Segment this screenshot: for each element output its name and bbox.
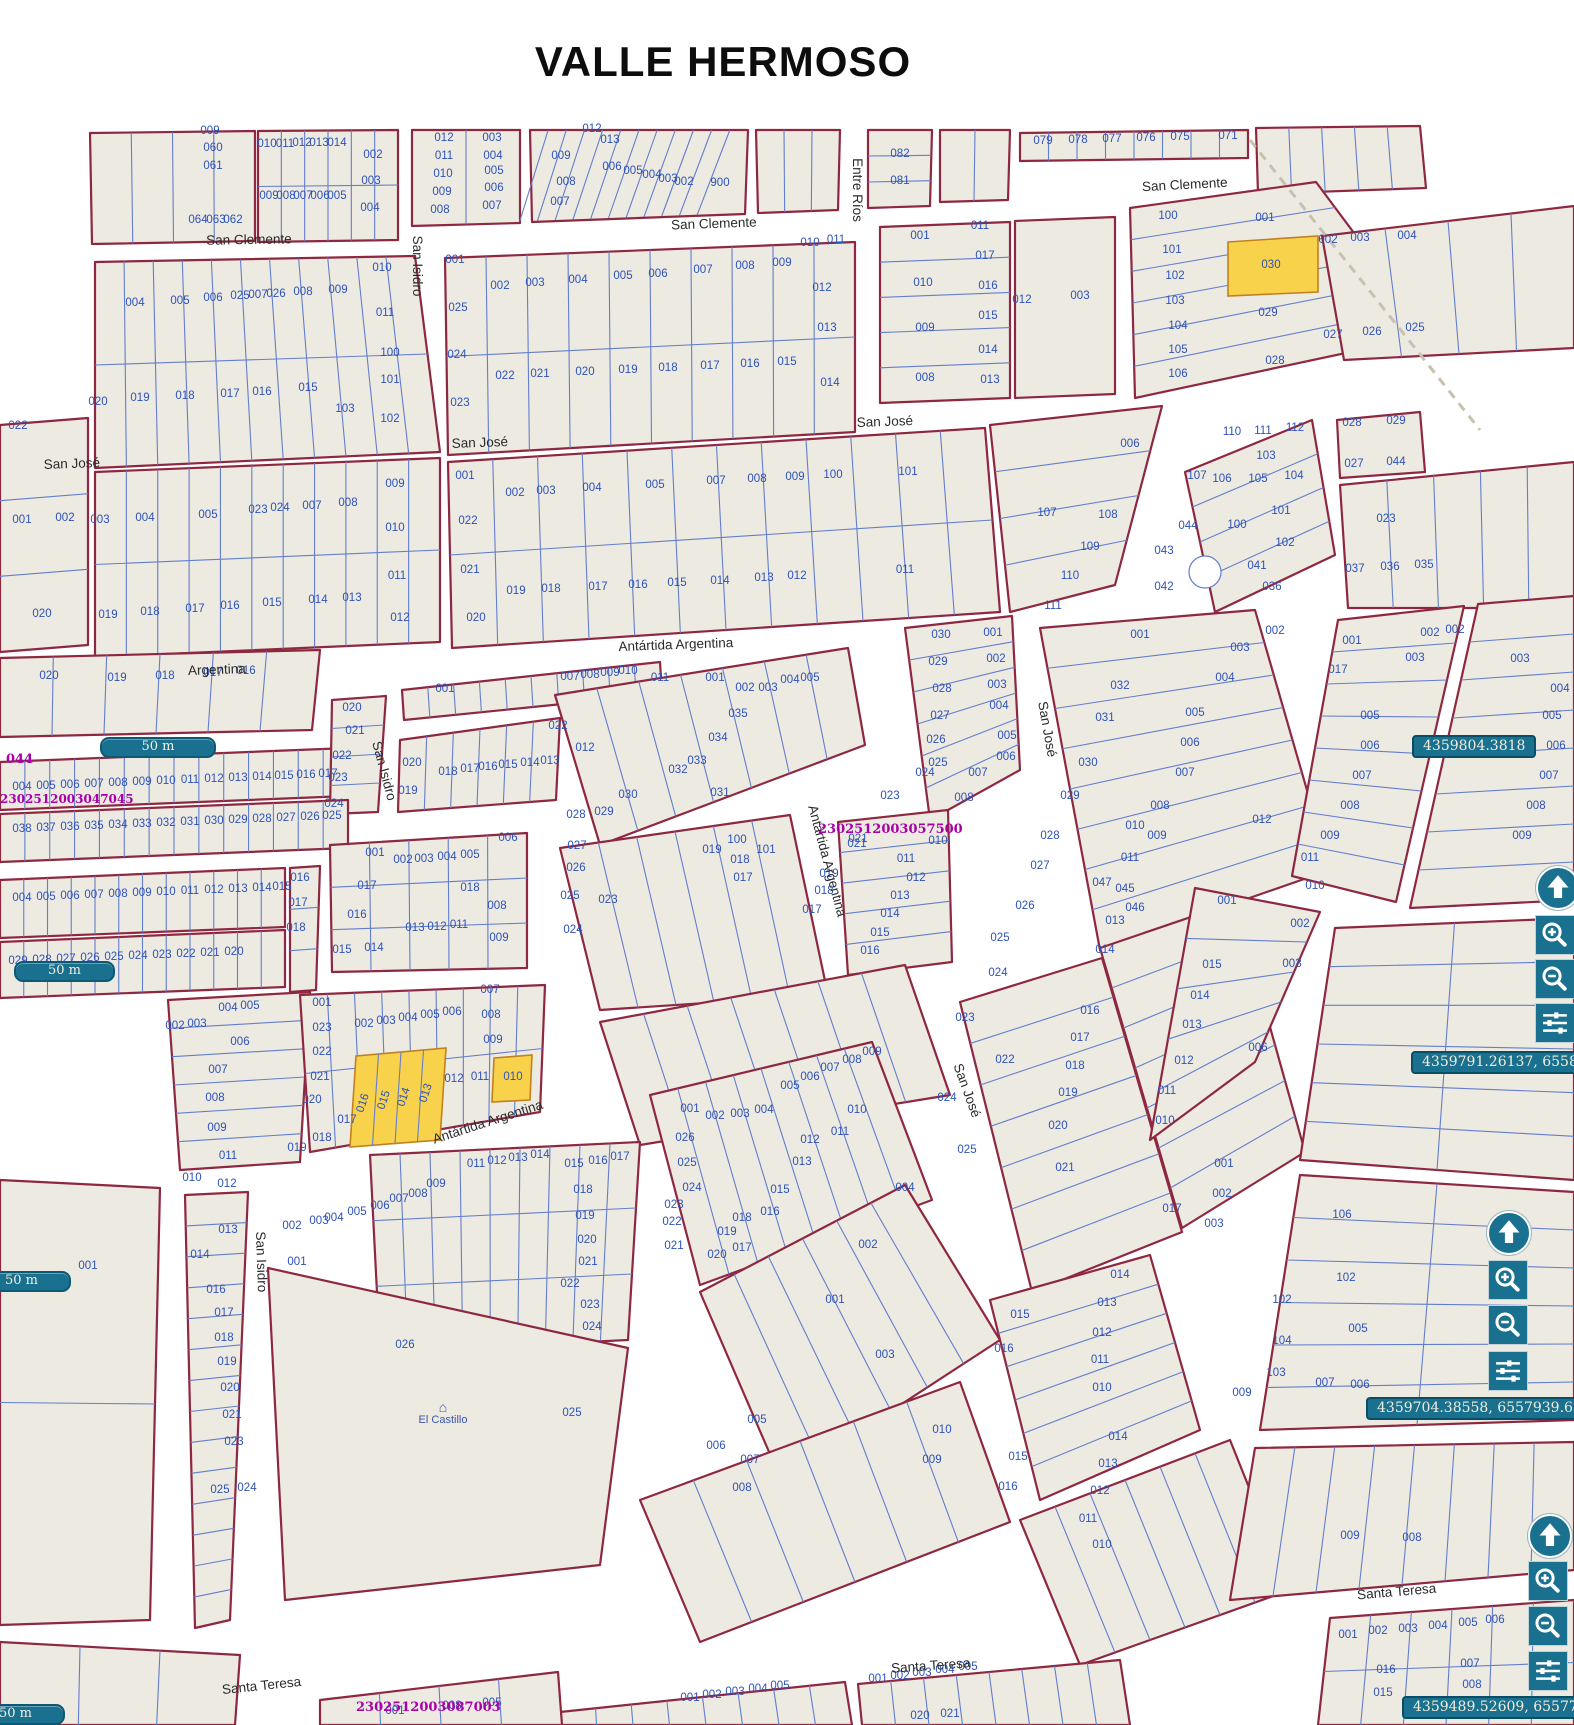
parcel-number: 006 (60, 890, 79, 902)
parcel-number: 011 (897, 853, 915, 865)
parcel-number: 015 (272, 881, 291, 893)
parcel-number: 008 (481, 1009, 500, 1021)
parcel-number: 005 (36, 780, 55, 792)
parcel-number: 017 (1070, 1032, 1089, 1044)
parcel-number: 024 (447, 349, 467, 361)
parcel-number: 064 (188, 214, 208, 226)
parcel-number: 029 (1258, 307, 1277, 319)
parcel-number: 015 (498, 759, 517, 771)
parcel-number: 018 (438, 766, 457, 778)
parcel-number: 011 (181, 774, 199, 786)
parcel-number: 026 (395, 1339, 414, 1351)
parcel-number: 077 (1102, 133, 1121, 145)
parcel-number: 015 (274, 770, 293, 782)
parcel-number: 016 (252, 386, 271, 398)
parcel-number: 103 (335, 403, 354, 415)
parcel-number: 017 (357, 880, 376, 892)
parcel-number: 007 (693, 264, 712, 276)
parcel-number: 024 (128, 950, 148, 962)
parcel-number: 007 (968, 767, 987, 779)
parcel-block (756, 130, 840, 213)
parcel-number: 102 (1165, 270, 1184, 282)
parcel-number: 006 (370, 1200, 389, 1212)
parcel-number: 111 (1254, 425, 1271, 437)
parcel-number: 011 (276, 138, 294, 150)
parcel-number: 011 (376, 307, 394, 319)
castle-icon: ⌂ (399, 1400, 487, 1414)
parcel-number: 006 (602, 161, 621, 173)
parcel-number: 009 (1232, 1387, 1251, 1399)
parcel-block (1256, 126, 1426, 194)
parcel-number: 004 (1397, 230, 1417, 242)
parcel-number: 026 (1362, 326, 1381, 338)
parcel-block (1230, 1442, 1574, 1600)
parcel-number: 014 (327, 137, 347, 149)
parcel-number: 026 (675, 1132, 694, 1144)
parcel-number: 025 (230, 290, 249, 302)
parcel-number: 022 (560, 1278, 579, 1290)
parcel-number: 019 (217, 1356, 236, 1368)
parcel-number: 007 (208, 1064, 227, 1076)
parcel-number: 015 (870, 927, 889, 939)
street-name: San Isidro (253, 1231, 270, 1292)
parcel-number: 005 (420, 1009, 439, 1021)
parcel-number: 014 (1108, 1431, 1128, 1443)
parcel-number: 015 (1373, 1687, 1392, 1699)
parcel-number: 004 (780, 674, 800, 686)
parcel-number: 019 (107, 672, 126, 684)
parcel-number: 012 (582, 123, 601, 135)
parcel-number: 005 (780, 1080, 799, 1092)
parcel-number: 102 (1336, 1272, 1355, 1284)
parcel-number: 008 (487, 900, 506, 912)
parcel-number: 014 (308, 594, 328, 606)
parcel-number: 101 (898, 466, 917, 478)
parcel-block (1300, 918, 1574, 1180)
parcel-number: 081 (890, 175, 909, 187)
parcel-number: 012 (1252, 814, 1271, 826)
parcel-number: 106 (1168, 368, 1187, 380)
parcel-number: 014 (1190, 990, 1210, 1002)
zoom-in-button[interactable] (1488, 1260, 1528, 1300)
parcel-number: 004 (1215, 672, 1235, 684)
parcel-number: 011 (827, 234, 845, 246)
pan-up-button[interactable] (1528, 1514, 1572, 1558)
parcel-number: 005 (484, 165, 503, 177)
parcel-number: 016 (588, 1155, 607, 1167)
street-name: San Clemente (1142, 175, 1228, 194)
parcel-number: 007 (1539, 770, 1558, 782)
parcel-number: 014 (880, 908, 900, 920)
parcel-block (905, 616, 1020, 820)
parcel-number: 008 (1462, 1679, 1481, 1691)
parcel-number: 001 (868, 1673, 887, 1685)
parcel-number: 004 (437, 851, 457, 863)
parcel-number: 010 (182, 1172, 201, 1184)
parcel-number: 013 (540, 755, 559, 767)
parcel-number: 001 (12, 514, 31, 526)
parcel-number: 030 (1078, 757, 1097, 769)
zoom-out-button[interactable] (1528, 1606, 1568, 1646)
parcel-number: 029 (1386, 415, 1405, 427)
parcel-number: 023 (312, 1022, 331, 1034)
cadastral-code: 044 (6, 752, 33, 767)
parcel-number: 011 (450, 919, 468, 931)
parcel-number: 005 (770, 1680, 789, 1692)
parcel-number: 005 (1360, 710, 1379, 722)
parcel-number: 036 (60, 821, 79, 833)
parcel-number: 102 (1275, 537, 1294, 549)
parcel-number: 003 (1350, 232, 1369, 244)
parcel-number: 007 (560, 671, 579, 683)
parcel-number: 010 (372, 262, 391, 274)
lot-line (784, 130, 785, 212)
parcel-number: 025 (210, 1484, 229, 1496)
parcel-number: 003 (758, 682, 777, 694)
parcel-number: 016 (290, 872, 309, 884)
parcel-number: 003 (725, 1686, 744, 1698)
parcel-number: 019 (717, 1226, 736, 1238)
parcel-number: 109 (1080, 541, 1099, 553)
parcel-number: 014 (1095, 944, 1115, 956)
parcel-number: 013 (228, 772, 247, 784)
parcel-number: 101 (1271, 505, 1290, 517)
parcel-number: 008 (915, 372, 934, 384)
parcel-block (868, 130, 932, 208)
parcel-number: 014 (978, 344, 998, 356)
parcel-number: 002 (1445, 624, 1464, 636)
cadastral-map[interactable]: 0090600610640630620100110120130140090080… (0, 0, 1574, 1725)
parcel-number: 010 (847, 1104, 866, 1116)
parcel-number: 028 (566, 809, 585, 821)
parcel-number: 002 (363, 149, 382, 161)
parcel-number: 022 (495, 370, 514, 382)
parcel-number: 006 (996, 751, 1015, 763)
parcel-number: 020 (402, 757, 421, 769)
parcel-number: 017 (610, 1151, 629, 1163)
parcel-number: 005 (800, 672, 819, 684)
parcel-number: 021 (664, 1240, 683, 1252)
parcel-number: 008 (747, 473, 766, 485)
parcel-number: 006 (1360, 740, 1379, 752)
parcel-number: 011 (651, 672, 669, 684)
parcel-number: 011 (219, 1150, 237, 1162)
layer-filter-button[interactable] (1528, 1651, 1568, 1691)
parcel-number: 008 (205, 1092, 224, 1104)
pan-up-button[interactable] (1487, 1211, 1531, 1255)
pan-up-button[interactable] (1536, 866, 1574, 910)
parcel-number: 015 (564, 1158, 583, 1170)
parcel-number: 102 (380, 413, 399, 425)
parcel-number: 021 (530, 368, 549, 380)
parcel-number: 004 (218, 1002, 238, 1014)
parcel-number: 003 (1204, 1218, 1223, 1230)
parcel-number: 020 (466, 612, 485, 624)
zoom-out-button[interactable] (1488, 1305, 1528, 1345)
parcel-number: 021 (310, 1071, 329, 1083)
parcel-number: 017 (460, 763, 479, 775)
parcel-number: 016 (347, 909, 366, 921)
parcel-number: 002 (490, 280, 509, 292)
parcel-number: 023 (328, 772, 347, 784)
parcel-number: 005 (1458, 1617, 1477, 1629)
parcel-number: 022 (332, 750, 351, 762)
parcel-number: 008 (954, 792, 973, 804)
parcel-number: 013 (754, 572, 773, 584)
parcel-number: 013 (508, 1152, 527, 1164)
parcel-number: 003 (987, 679, 1006, 691)
parcel-number: 003 (361, 175, 380, 187)
parcel-number: 004 (895, 1182, 915, 1194)
parcel-number: 001 (705, 672, 724, 684)
parcel-number: 017 (214, 1307, 233, 1319)
parcel-number: 038 (12, 823, 31, 835)
parcel-number: 024 (937, 1092, 957, 1104)
parcel-number: 003 (875, 1349, 894, 1361)
layer-filter-button[interactable] (1488, 1351, 1528, 1391)
parcel-number: 001 (1130, 629, 1149, 641)
parcel-number: 025 (322, 810, 341, 822)
parcel-number: 009 (922, 1454, 941, 1466)
street-name: San Clemente (671, 215, 757, 233)
parcel-number: 006 (800, 1071, 819, 1083)
parcel-number: 101 (1162, 244, 1181, 256)
parcel-number: 018 (140, 606, 159, 618)
street-name: San Clemente (206, 231, 292, 247)
parcel-number: 012 (427, 921, 446, 933)
street-name: San José (856, 413, 913, 430)
parcel-number: 023 (880, 790, 899, 802)
parcel-number: 016 (628, 579, 647, 591)
parcel-number: 015 (1008, 1451, 1027, 1463)
parcel-number: 004 (398, 1012, 418, 1024)
parcel-number: 100 (1158, 210, 1177, 222)
parcel-number: 011 (971, 220, 989, 232)
parcel-number: 016 (998, 1481, 1017, 1493)
parcel-number: 005 (170, 295, 189, 307)
parcel-number: 034 (708, 732, 728, 744)
parcel-number: 013 (1097, 1297, 1116, 1309)
parcel-number: 003 (1282, 958, 1301, 970)
parcel-number: 104 (1284, 470, 1304, 482)
parcel-number: 008 (1340, 800, 1359, 812)
parcel-number: 017 (733, 872, 752, 884)
parcel-number: 003 (536, 485, 555, 497)
parcel-number: 010 (800, 237, 819, 249)
parcel-number: 001 (455, 470, 474, 482)
parcel-number: 009 (600, 667, 619, 679)
zoom-in-button[interactable] (1535, 915, 1574, 955)
parcel-number: 001 (1338, 1629, 1357, 1641)
layer-filter-button[interactable] (1535, 1003, 1574, 1043)
parcel-number: 003 (1230, 642, 1249, 654)
parcel-number: 035 (1414, 559, 1433, 571)
map-viewport[interactable]: 0090600610640630620100110120130140090080… (0, 0, 1574, 1725)
parcel-number: 032 (668, 764, 687, 776)
parcel-number: 007 (550, 196, 569, 208)
parcel-number: 071 (1218, 130, 1237, 142)
parcel-number: 009 (772, 257, 791, 269)
parcel-number: 009 (132, 776, 151, 788)
parcel-number: 005 (747, 1414, 766, 1426)
parcel-number: 022 (458, 515, 477, 527)
parcel-number: 008 (580, 669, 599, 681)
parcel-number: 060 (203, 142, 222, 154)
parcel-number: 001 (445, 254, 464, 266)
parcel-number: 025 (677, 1157, 696, 1169)
parcel-number: 009 (551, 150, 570, 162)
parcel-number: 008 (293, 286, 312, 298)
zoom-in-button[interactable] (1528, 1561, 1568, 1601)
parcel-number: 023 (580, 1299, 599, 1311)
parcel-number: 005 (1185, 707, 1204, 719)
parcel-number: 001 (435, 683, 454, 695)
parcel-number: 016 (740, 358, 759, 370)
parcel-number: 018 (541, 583, 560, 595)
parcel-number: 013 (980, 374, 999, 386)
parcel-number: 001 (78, 1260, 97, 1272)
parcel-number: 015 (978, 310, 997, 322)
parcel-number: 017 (337, 1114, 356, 1126)
parcel-number: 022 (176, 948, 195, 960)
parcel-number: 005 (1542, 710, 1561, 722)
parcel-number: 001 (680, 1692, 699, 1704)
parcel-number: 016 (860, 945, 879, 957)
parcel-number: 018 (460, 882, 479, 894)
parcel-number: 010 (1305, 880, 1324, 892)
parcel-number: 019 (398, 785, 417, 797)
coordinate-readout: 4359704.38558, 6557939.68836 (1366, 1397, 1574, 1420)
parcel-number: 015 (332, 944, 351, 956)
parcel-number: 005 (460, 849, 479, 861)
parcel-number: 022 (8, 420, 27, 432)
parcel-number: 018 (286, 922, 305, 934)
parcel-number: 017 (802, 904, 821, 916)
parcel-number: 029 (594, 806, 613, 818)
street-name: Entre Ríos (850, 158, 865, 222)
parcel-number: 024 (988, 967, 1008, 979)
parcel-number: 002 (735, 682, 754, 694)
parcel-number: 004 (568, 274, 588, 286)
parcel-number: 036 (1262, 581, 1281, 593)
parcel-number: 002 (505, 487, 524, 499)
parcel-number: 025 (1405, 322, 1424, 334)
parcel-number: 012 (204, 884, 223, 896)
parcel-number: 027 (1030, 860, 1049, 872)
parcel-number: 020 (577, 1234, 596, 1246)
parcel-number: 011 (181, 885, 199, 897)
parcel-number: 030 (931, 629, 950, 641)
parcel-number: 013 (218, 1224, 237, 1236)
parcel-number: 005 (645, 479, 664, 491)
parcel-number: 023 (1376, 513, 1395, 525)
parcel-number: 011 (896, 564, 914, 576)
parcel-number: 007 (1175, 767, 1194, 779)
parcel-number: 006 (1485, 1614, 1504, 1626)
parcel-number: 003 (414, 853, 433, 865)
parcel-number: 002 (165, 1020, 184, 1032)
parcel-number: 101 (380, 374, 399, 386)
parcel-number: 026 (300, 811, 319, 823)
parcel-number: 006 (706, 1440, 725, 1452)
parcel-number: 026 (266, 288, 285, 300)
parcel-number: 016 (220, 600, 239, 612)
parcel-block (448, 428, 1000, 648)
parcel-number: 002 (1368, 1625, 1387, 1637)
parcel-number: 001 (287, 1256, 306, 1268)
scale-bar: 50 m (100, 737, 216, 758)
parcel-number: 001 (1255, 212, 1274, 224)
parcel-number: 020 (39, 670, 58, 682)
parcel-number: 009 (207, 1122, 226, 1134)
parcel-number: 003 (376, 1015, 395, 1027)
parcel-number: 017 (220, 388, 239, 400)
parcel-number: 005 (327, 190, 346, 202)
parcel-number: 019 (98, 609, 117, 621)
parcel-number: 012 (1174, 1055, 1193, 1067)
parcel-number: 028 (252, 813, 271, 825)
parcel-number: 009 (385, 478, 404, 490)
parcel-number: 015 (777, 356, 796, 368)
cadastral-code: 2302512003057500 (818, 822, 963, 837)
parcel-number: 007 (389, 1193, 408, 1205)
parcel-number: 011 (471, 1071, 489, 1083)
parcel-number: 021 (200, 947, 219, 959)
parcel-number: 010 (1125, 820, 1144, 832)
parcel-block (1040, 610, 1330, 950)
parcel-number: 009 (862, 1046, 881, 1058)
parcel-number: 004 (483, 150, 503, 162)
coordinate-readout: 4359791.26137, 6558105.37516 (1411, 1051, 1574, 1074)
zoom-out-button[interactable] (1535, 959, 1574, 999)
parcel-number: 005 (198, 509, 217, 521)
parcel-number: 011 (1158, 1085, 1176, 1097)
parcel-number: 016 (478, 761, 497, 773)
parcel-number: 023 (955, 1012, 974, 1024)
parcel-number: 008 (1150, 800, 1169, 812)
parcel-number: 009 (489, 932, 508, 944)
parcel-number: 045 (1115, 883, 1134, 895)
parcel-number: 014 (1110, 1269, 1130, 1281)
parcel-number: 016 (1080, 1005, 1099, 1017)
parcel-number: 016 (206, 1284, 225, 1296)
parcel-number: 008 (430, 204, 449, 216)
parcel-number: 008 (108, 777, 127, 789)
parcel-number: 009 (785, 471, 804, 483)
parcel-number: 019 (618, 364, 637, 376)
parcel-number: 010 (257, 138, 276, 150)
parcel-number: 020 (342, 702, 361, 714)
parcel-number: 006 (498, 832, 517, 844)
cadastral-code: 2302512003087003 (356, 1700, 501, 1715)
parcel-number: 018 (175, 390, 194, 402)
parcel-number: 001 (1342, 635, 1361, 647)
parcel-number: 013 (890, 890, 909, 902)
parcel-number: 018 (732, 1212, 751, 1224)
parcel-number: 004 (1428, 1620, 1448, 1632)
parcel-number: 023 (248, 504, 267, 516)
parcel-number: 022 (312, 1046, 331, 1058)
parcel-number: 047 (1092, 877, 1111, 889)
parcel-number: 021 (345, 725, 364, 737)
parcel-number: 111 (1044, 600, 1061, 612)
parcel-number: 019 (287, 1142, 306, 1154)
parcel-number: 027 (276, 812, 295, 824)
parcel-number: 023 (224, 1436, 243, 1448)
parcel-number: 043 (1154, 545, 1173, 557)
parcel-number: 021 (578, 1256, 597, 1268)
parcel-number: 005 (997, 730, 1016, 742)
